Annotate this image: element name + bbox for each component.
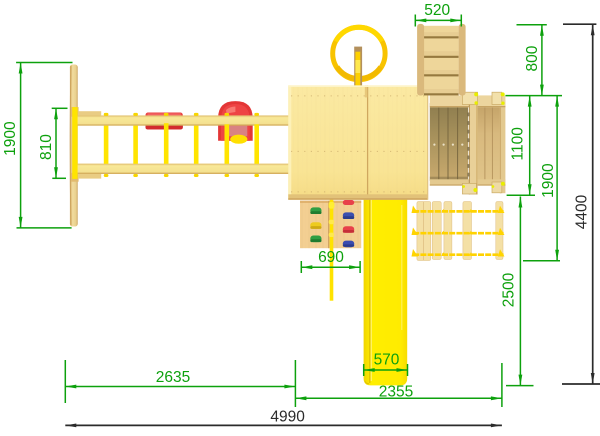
svg-text:4400: 4400 [574,194,591,229]
svg-text:1100: 1100 [510,127,527,161]
svg-text:810: 810 [38,134,55,160]
svg-text:1900: 1900 [2,121,19,156]
svg-text:2635: 2635 [156,369,190,386]
svg-text:800: 800 [524,45,541,71]
svg-text:2355: 2355 [379,384,413,401]
svg-text:1900: 1900 [540,163,557,198]
svg-text:690: 690 [318,249,344,266]
svg-text:2500: 2500 [501,272,518,307]
svg-text:570: 570 [374,352,400,369]
svg-text:4990: 4990 [270,409,305,426]
svg-text:520: 520 [424,2,450,19]
